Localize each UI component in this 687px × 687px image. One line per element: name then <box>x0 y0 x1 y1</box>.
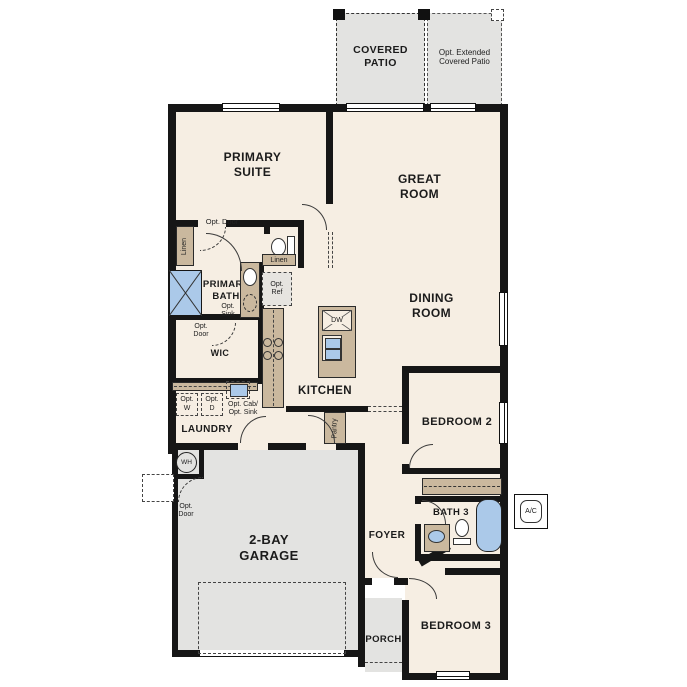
bath3-sink <box>428 530 445 543</box>
opt-door-wic-label: Opt. Door <box>188 323 214 339</box>
linen-cabinet-hall: Linen <box>262 254 296 266</box>
opt-dryer-label: Opt. D <box>205 396 218 412</box>
cased-opening-foyer <box>368 406 402 412</box>
wall-porch-top-b <box>394 578 408 585</box>
opt-door-garage-outside <box>142 474 174 502</box>
linen-cabinet-left: Linen <box>176 226 194 266</box>
room-label-laundry: LAUNDRY <box>178 424 236 437</box>
range-burner-1 <box>263 338 272 347</box>
window-bedroom2 <box>499 402 508 444</box>
water-heater: WH <box>176 452 197 473</box>
room-label-bedroom3: BEDROOM 3 <box>415 620 497 634</box>
room-label-kitchen: KITCHEN <box>294 384 356 398</box>
opt-cab-box <box>226 381 250 399</box>
dishwasher: DW <box>322 310 352 331</box>
wall-bath3-left-a <box>415 496 421 504</box>
window-bedroom3 <box>436 671 470 680</box>
wall-primary-divider <box>326 104 333 204</box>
laundry-sink <box>230 384 248 397</box>
opt-sink-label: Opt. Sink <box>214 303 242 319</box>
opt-washer-label: Opt. W <box>180 396 193 412</box>
room-label-dining-room: DINING ROOM <box>389 291 474 321</box>
room-label-porch: PORCH <box>364 634 403 646</box>
opt-ref-box: Opt. Ref <box>262 272 292 306</box>
wall-garage-top-a <box>172 443 238 450</box>
opt-cab-sink-label: Opt. Cab/ Opt. Sink <box>222 401 264 417</box>
ac-label: A/C <box>525 508 537 515</box>
wall-bedroom2-top <box>402 366 508 373</box>
bath3-toilet-base <box>453 538 471 545</box>
window-dining <box>499 292 508 346</box>
room-label-bedroom2: BEDROOM 2 <box>416 416 498 430</box>
primary-opt-sink <box>243 294 257 312</box>
wall-bedroom3-left <box>402 600 409 678</box>
wall-toilet-alcove <box>264 220 270 234</box>
wall-bedroom3-top <box>445 568 500 575</box>
porch-dashed-line <box>365 662 402 663</box>
patio-corner-notch <box>491 9 504 21</box>
wh-nook-wall-r <box>199 450 204 476</box>
water-heater-label: WH <box>181 459 192 466</box>
opt-door-garage-label: Opt. Door <box>172 503 200 519</box>
island-sink <box>322 335 342 361</box>
window-great-room <box>430 103 476 112</box>
opt-dryer-box: Opt. D <box>201 393 223 416</box>
room-label-great-room: GREAT ROOM <box>377 172 462 202</box>
bathtub <box>476 499 502 552</box>
primary-sink <box>243 268 257 286</box>
dishwasher-label: DW <box>330 317 344 324</box>
linen-left-label: Linen <box>182 237 189 254</box>
bedroom2-closet-rod <box>424 486 500 487</box>
room-label-primary-suite: PRIMARY SUITE <box>210 150 295 180</box>
range-burner-3 <box>263 351 272 360</box>
opt-washer-box: Opt. W <box>176 393 198 416</box>
wall-bath3-bottom <box>415 554 508 561</box>
wall-bedroom2-bottom <box>402 468 508 474</box>
garage-door-clearance <box>198 582 346 654</box>
floor-plan: COVERED PATIO Opt. Extended Covered Pati… <box>0 0 687 687</box>
window-primary-suite <box>222 103 280 112</box>
patio-post-right <box>418 9 430 20</box>
patio-slider-door <box>346 103 424 112</box>
wall-porch-top-a <box>358 578 372 585</box>
opt-ref-label: Opt. Ref <box>270 281 283 297</box>
room-label-wic: WIC <box>204 348 236 359</box>
wall-garage-top-b <box>268 443 306 450</box>
wall-garage-top-c <box>336 443 365 450</box>
bath3-toilet-bowl <box>455 519 469 537</box>
range-burner-2 <box>274 338 283 347</box>
ac-unit: A/C <box>514 494 548 529</box>
cased-opening-hall <box>328 232 333 268</box>
wall-right-bedroom3 <box>500 578 508 680</box>
room-label-garage: 2-BAY GARAGE <box>233 532 305 565</box>
patio-post-left <box>333 9 345 20</box>
opt-door-primary-label: Opt. Door <box>200 218 244 227</box>
room-label-foyer: FOYER <box>366 530 408 543</box>
wall-bedroom2-left-a <box>402 366 409 444</box>
linen-hall-label: Linen <box>270 257 287 264</box>
room-label-opt-extended-patio: Opt. Extended Covered Patio <box>428 48 501 66</box>
room-label-covered-patio: COVERED PATIO <box>338 44 423 70</box>
range-burner-4 <box>274 351 283 360</box>
